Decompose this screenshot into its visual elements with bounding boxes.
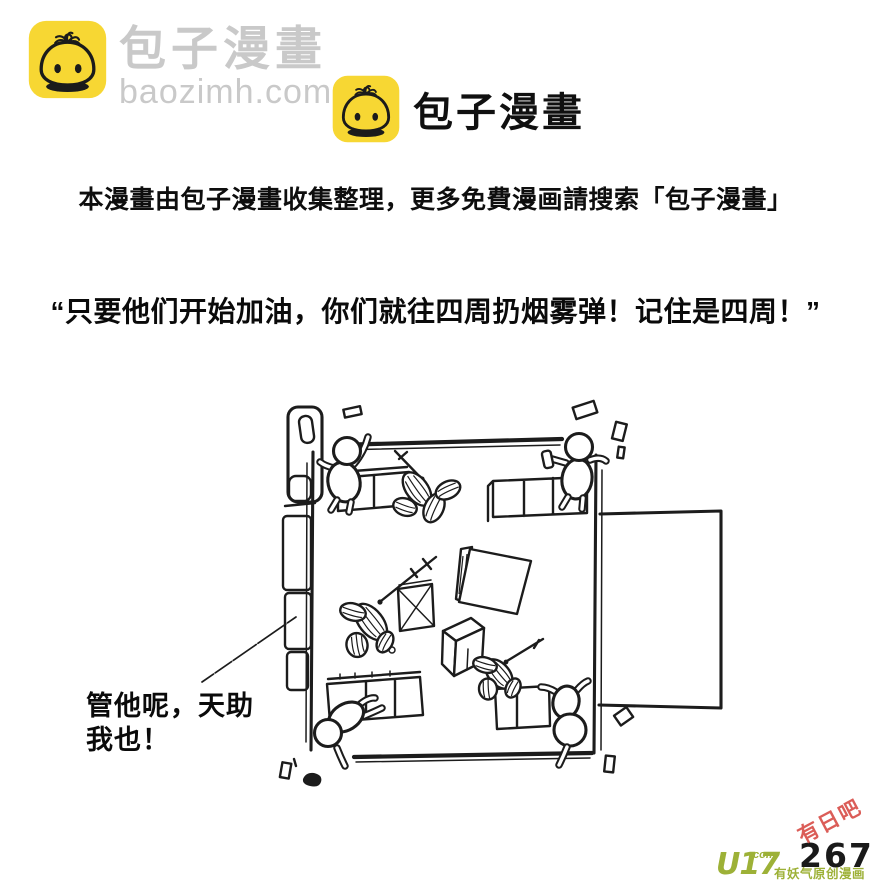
room-walls: [294, 439, 602, 766]
baozi-mascot-icon: [332, 75, 400, 143]
narration-text: “只要他们开始加油，你们就往四周扔烟雾弹！记住是四周！”: [0, 290, 871, 330]
collection-notice: 本漫畫由包子漫畫收集整理，更多免費漫画請搜索「包子漫畫」: [0, 180, 871, 216]
figure-bottom-right: [541, 681, 588, 765]
paper-sheets: [456, 547, 531, 614]
speech-line-2: 我也！: [86, 724, 254, 758]
comic-page: 包子漫畫 baozimh.com 包子漫畫 本漫畫由包子漫畫收集整理，更多免費漫…: [0, 0, 871, 882]
u17-domain-suffix: .com: [750, 849, 776, 861]
corner-brand-domain: baozimh.com: [119, 75, 332, 111]
center-brand: 包子漫畫: [332, 75, 585, 143]
x-box: [398, 580, 434, 631]
u17-tagline: 有妖气原创漫画: [774, 863, 865, 882]
corner-brand-text: 包子漫畫 baozimh.com: [119, 20, 332, 111]
bench-left: [283, 407, 322, 690]
debris: [280, 401, 633, 787]
cactus-top: [391, 451, 463, 526]
speech-line-1: 管他呢，天助: [86, 690, 254, 724]
baozi-mascot-icon: [28, 20, 107, 99]
cactus-middle-left: [338, 557, 436, 659]
cactus-bottom: [471, 639, 543, 700]
figure-bottom-left: [315, 696, 383, 766]
annex-room: [599, 511, 721, 708]
pointer-line: [202, 617, 296, 682]
crate-bottom-left: [327, 671, 423, 722]
speech-text: 管他呢，天助 我也！: [86, 690, 254, 758]
open-box: [442, 618, 484, 676]
center-brand-name: 包子漫畫: [413, 80, 585, 138]
crate-bottom-right: [495, 686, 550, 729]
crate-top-left: [338, 467, 409, 511]
figure-top-left: [320, 437, 368, 512]
crate-top-right: [488, 477, 587, 521]
corner-brand-name: 包子漫畫: [119, 24, 332, 73]
figure-top-right: [541, 434, 606, 510]
corner-brand: 包子漫畫 baozimh.com: [28, 20, 332, 111]
